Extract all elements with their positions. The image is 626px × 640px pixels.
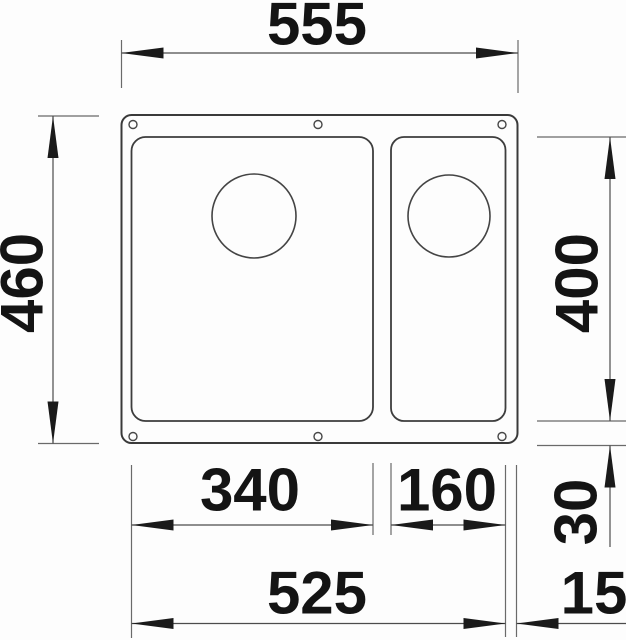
sink-outer-flange [122,115,518,443]
dimension-label-525: 525 [267,560,367,627]
mounting-hole-top-left [129,121,137,129]
sink-body [122,115,518,443]
arrowhead-up-icon [605,137,616,179]
arrowhead-left-icon [122,48,164,59]
small-bowl [391,137,506,421]
arrowhead-up-icon [48,116,59,158]
main-bowl [132,137,374,421]
dimension-label-400: 400 [544,233,611,333]
dimension-small-bowl-width: 160 [391,457,506,638]
dimension-bottom-offset: 30 [537,446,626,548]
dimension-bowl-depth: 400 [537,137,626,421]
mounting-hole-top-right [498,121,506,129]
arrowhead-right-icon [331,520,373,531]
arrowhead-down-icon [605,379,616,421]
technical-drawing-canvas: 555 460 400 30 340 [0,0,626,640]
dimension-label-460: 460 [0,233,56,333]
arrowhead-left-icon [517,618,559,629]
dimension-label-15: 15 [561,560,626,627]
dimension-label-555: 555 [267,0,367,58]
sink-drawing: 555 460 400 30 340 [0,0,626,640]
arrowhead-down-icon [48,402,59,444]
mounting-hole-top-center [314,121,322,129]
dimension-label-340: 340 [200,457,300,524]
arrowhead-left-icon [132,520,174,531]
dimension-left-depth: 460 [0,116,99,444]
mounting-hole-bottom-center [314,433,322,441]
arrowhead-right-icon [476,48,518,59]
arrowhead-right-icon [464,618,506,629]
dimension-top-width: 555 [122,0,519,93]
mounting-hole-bottom-right [498,433,506,441]
small-bowl-drain-hole [408,175,490,257]
main-bowl-drain-hole [212,174,296,258]
dimension-label-160: 160 [397,457,497,524]
dimension-inner-width: 525 [132,560,506,630]
mounting-hole-bottom-left [129,433,137,441]
arrowhead-left-icon [132,618,174,629]
dimension-label-30: 30 [543,479,610,546]
